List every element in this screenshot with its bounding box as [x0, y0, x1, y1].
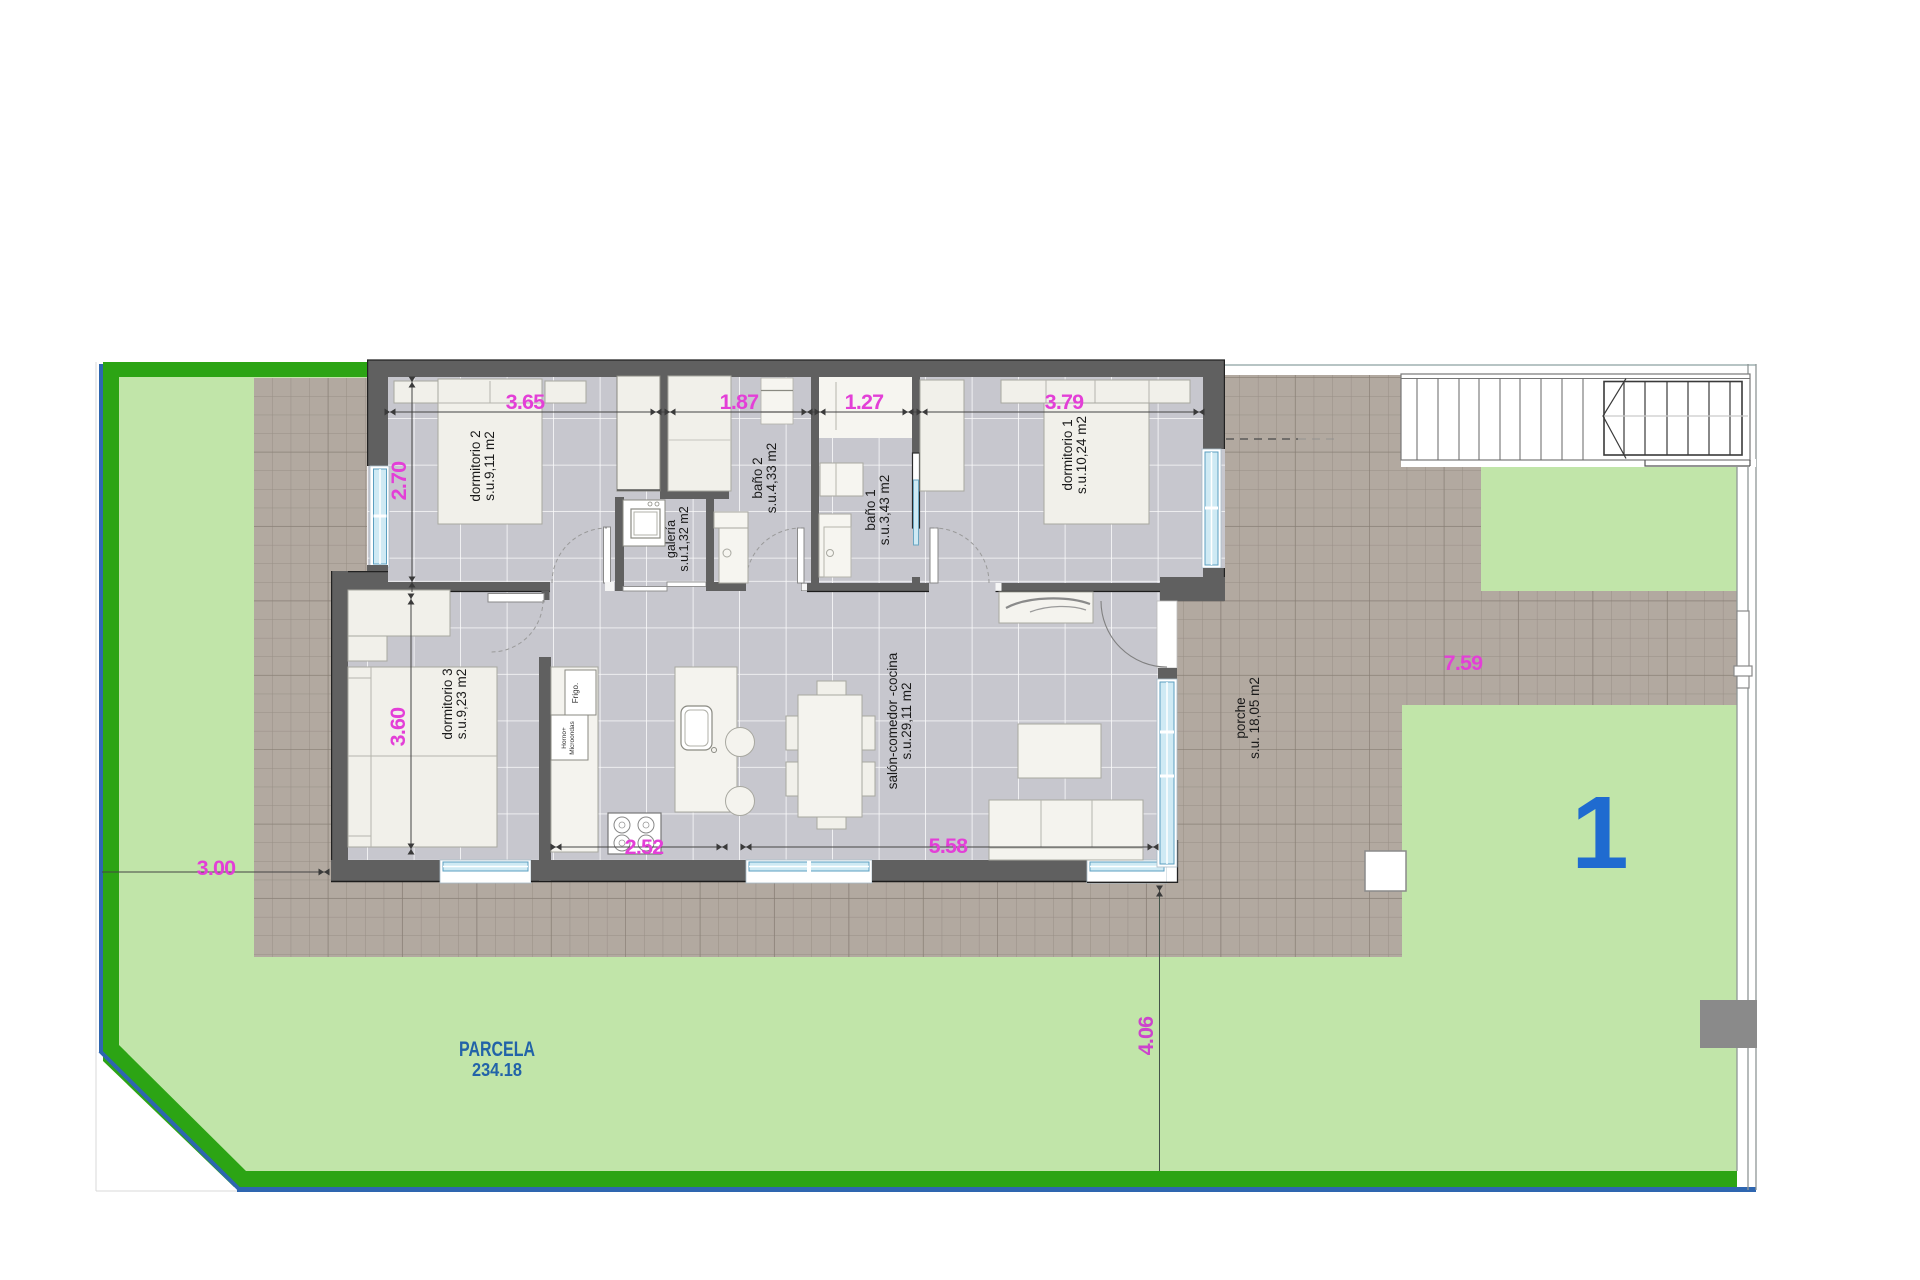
svg-text:3.79: 3.79 — [1045, 390, 1084, 414]
svg-text:2.52: 2.52 — [625, 835, 664, 859]
svg-text:3.65: 3.65 — [506, 390, 545, 414]
svg-text:234.18: 234.18 — [472, 1060, 522, 1080]
svg-text:dormitorio 2s.u.9,11 m2: dormitorio 2s.u.9,11 m2 — [468, 430, 497, 501]
svg-text:Frigo.: Frigo. — [571, 683, 580, 703]
svg-text:2.70: 2.70 — [387, 461, 411, 500]
svg-text:Microondas: Microondas — [569, 720, 576, 754]
svg-text:7.59: 7.59 — [1444, 651, 1483, 675]
svg-text:5.58: 5.58 — [929, 834, 968, 858]
svg-text:Horno+: Horno+ — [561, 727, 568, 749]
svg-text:dormitorio 3s.u.9,23 m2: dormitorio 3s.u.9,23 m2 — [440, 668, 469, 739]
svg-text:1.27: 1.27 — [845, 390, 884, 414]
svg-text:3.60: 3.60 — [386, 707, 410, 746]
svg-text:4.06: 4.06 — [1134, 1016, 1158, 1055]
svg-text:1.87: 1.87 — [720, 390, 759, 414]
svg-text:1: 1 — [1571, 775, 1628, 890]
svg-text:dormitorio 1s.u.10,24 m2: dormitorio 1s.u.10,24 m2 — [1060, 416, 1089, 494]
svg-text:PARCELA: PARCELA — [459, 1037, 535, 1061]
svg-text:3.00: 3.00 — [197, 856, 236, 880]
